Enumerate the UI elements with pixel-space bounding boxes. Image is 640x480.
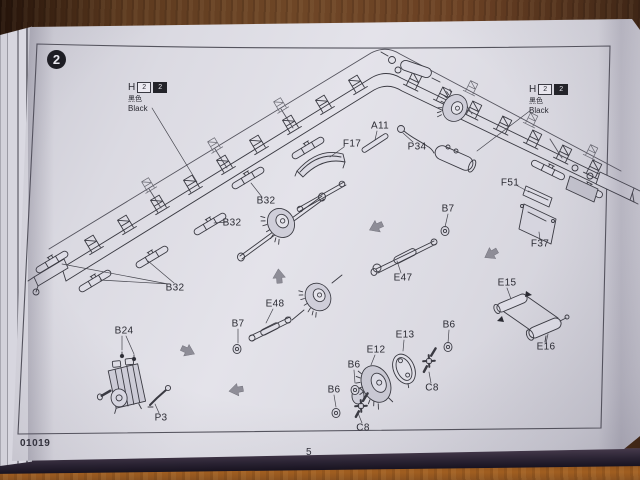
part-label-e13: E13 [396, 330, 415, 341]
part-label-e15: E15 [498, 278, 517, 289]
part-label-b32: B32 [257, 196, 276, 207]
kit-number: 01019 [20, 438, 50, 449]
part-label-b32: B32 [166, 283, 185, 294]
part-label-f17: F17 [343, 139, 361, 150]
instruction-page: 2 H 2 2 黑色 Black H 2 2 黑色 Black A11F17P3… [0, 0, 640, 480]
part-label-e48: E48 [266, 299, 285, 310]
photo-of-instruction-page: 2 H 2 2 黑色 Black H 2 2 黑色 Black A11F17P3… [0, 0, 640, 480]
part-label-c8: C8 [425, 383, 438, 394]
part-labels-layer: A11F17P34F51F37B7E47B32B32B32E48B7B24P3E… [0, 0, 640, 480]
part-label-b6: B6 [328, 385, 341, 396]
part-label-a11: A11 [371, 121, 389, 132]
part-label-c8: C8 [356, 423, 369, 434]
part-label-b24: B24 [115, 326, 134, 337]
part-label-e12: E12 [367, 345, 386, 356]
part-label-b6: B6 [443, 320, 456, 331]
part-label-b7: B7 [442, 204, 455, 215]
part-label-f51: F51 [501, 178, 519, 189]
part-label-b32: B32 [223, 218, 242, 229]
part-label-b6: B6 [348, 360, 361, 371]
part-label-p3: P3 [155, 413, 168, 424]
part-label-f37: F37 [531, 239, 549, 250]
part-label-e47: E47 [394, 273, 413, 284]
part-label-e16: E16 [537, 342, 556, 353]
part-label-b7: B7 [232, 319, 245, 330]
part-label-p34: P34 [408, 142, 427, 153]
